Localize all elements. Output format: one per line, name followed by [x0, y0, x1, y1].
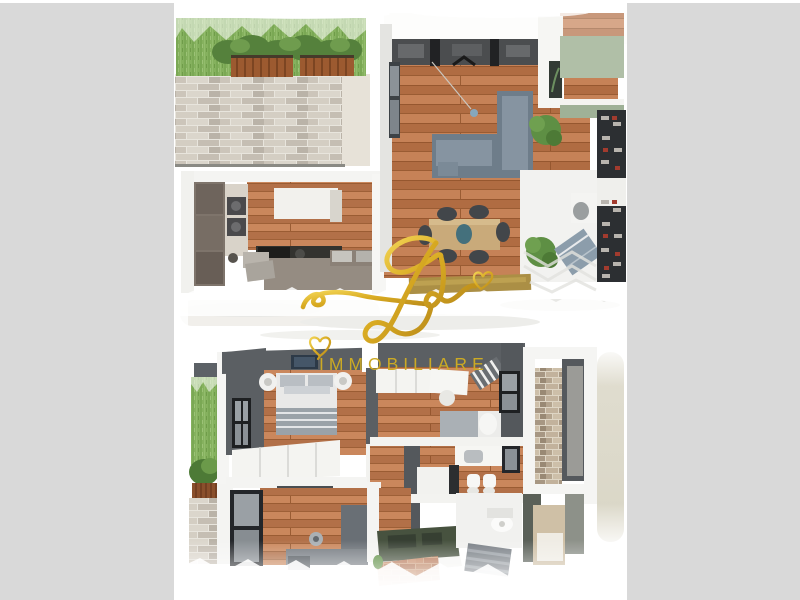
svg-text:IMMOBILIARE: IMMOBILIARE — [319, 354, 489, 374]
